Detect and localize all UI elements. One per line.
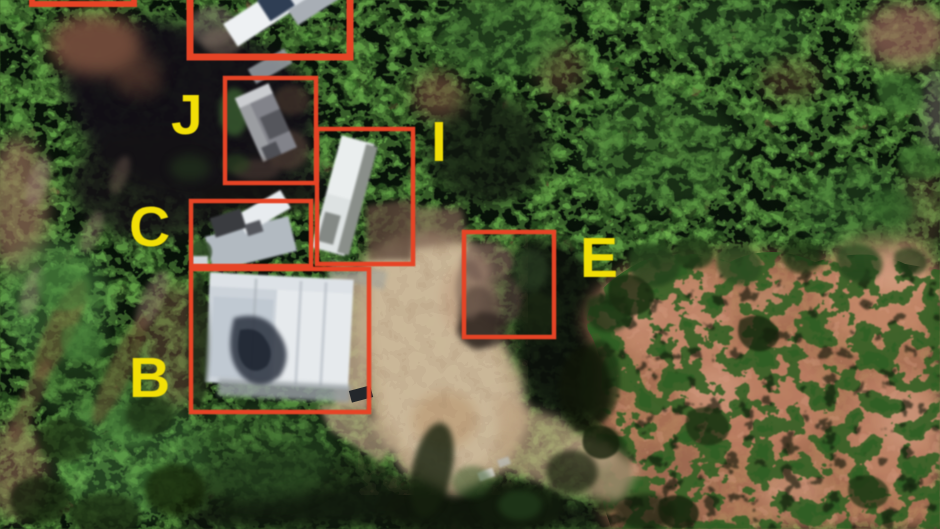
- svg-text:J: J: [171, 83, 203, 147]
- svg-text:B: B: [129, 346, 170, 410]
- svg-text:E: E: [580, 226, 618, 290]
- svg-text:I: I: [431, 110, 447, 174]
- svg-text:C: C: [129, 195, 170, 259]
